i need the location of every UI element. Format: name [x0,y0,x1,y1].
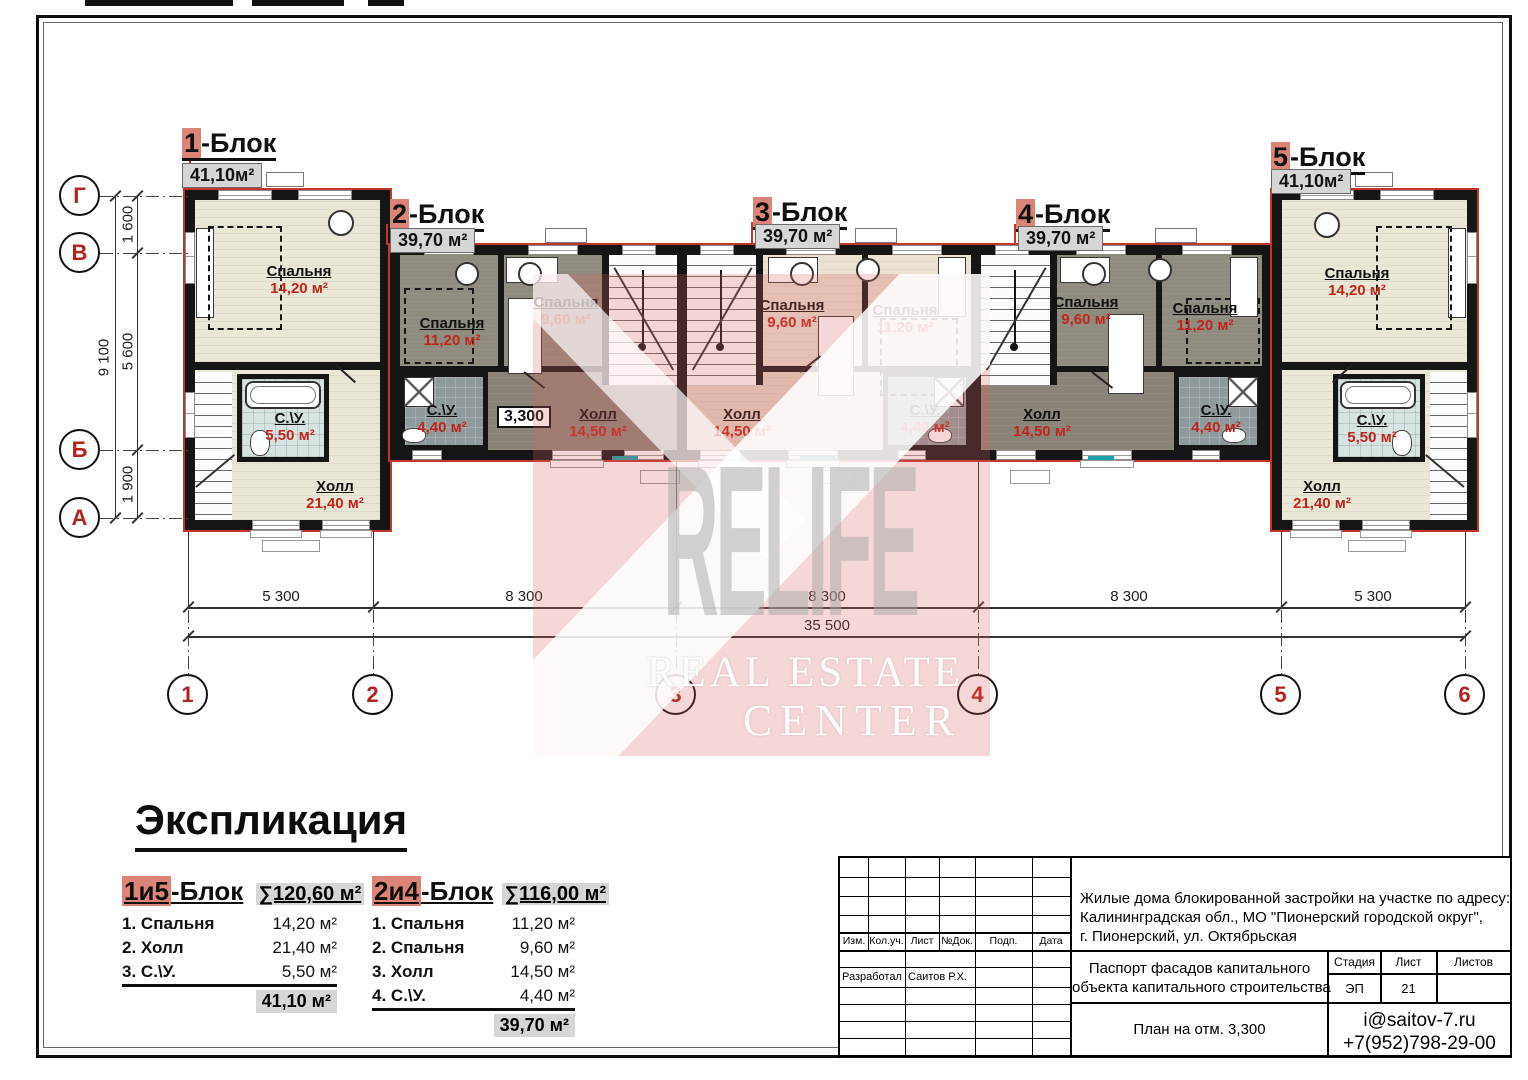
table-row: 2. Холл21,40 м² [122,938,337,958]
table-header: 1и5-Блок ∑120,60 м² [122,876,364,907]
entrance-porch [262,540,320,552]
axis-letter: Б [72,437,88,463]
grid-bubble-3: 3 [655,674,696,715]
dim-value: 5 300 [1343,588,1403,605]
room-name: Спальня [873,302,938,319]
window-opening [412,450,442,460]
room-name: Холл [713,406,771,423]
chair [1082,262,1106,286]
drawing-sheet: { "watermark": {"big": "RELIFE", "line1"… [0,0,1528,1080]
grid-bubble-1: 1 [167,674,208,715]
tb-line [905,858,906,1055]
tb-developer-name: Саитов Р.Х. [908,971,974,983]
tb-sheet-label: Лист [1381,955,1436,969]
tb-line [840,967,1070,968]
room-label-b5-hall: Холл 21,40 м² [1293,478,1351,513]
block-number: 1 [182,128,201,158]
block-number: 5 [1271,142,1290,172]
wall [1282,362,1467,370]
room-name: Спальня [1325,265,1390,282]
grid-line [1465,610,1466,674]
extension-line [373,532,374,608]
label-leader [386,224,388,245]
extension-line [978,462,979,608]
window-opening [1192,450,1220,460]
axis-letter: Г [73,183,85,209]
chair [455,262,479,286]
entrance-porch [1348,540,1406,552]
room-label-b4-hall: Холл 14,50 м² [1013,406,1071,441]
grid-line [1281,610,1282,674]
window-opening [185,232,195,284]
room-label-b3-hall: Холл 14,50 м² [713,406,771,441]
row-area: 14,20 м² [272,914,337,934]
axis-letter: В [72,240,88,266]
window-opening [996,450,1036,460]
tb-line [840,1021,1070,1022]
table-row: 1. Спальня11,20 м² [372,914,575,934]
grid-bubble-5: 5 [1260,674,1301,715]
chair [328,210,354,236]
dim-value: 1 900 [120,450,137,520]
room-label-b1-wc: С.\У. 5,50 м² [265,410,314,445]
block1-area-box: 41,10м² [182,163,262,188]
bathtub [245,381,321,409]
row-area: 4,40 м² [520,986,575,1006]
table-row: 3. С.\У.5,50 м² [122,962,337,982]
window-sill [320,530,372,538]
window-opening [218,190,272,200]
dimension-line [115,196,116,518]
extension-line [1281,532,1282,608]
window-opening [185,392,195,438]
window-sill [1360,530,1412,538]
tb-address-line2: Калининградская обл., МО "Пионерский гор… [1080,909,1483,926]
chair [1148,258,1172,282]
room-name: С.\У. [1191,402,1240,419]
explication-title: Экспликация [135,796,407,852]
table-total: 39,70 м² [494,1014,575,1037]
row-area: 5,50 м² [282,962,337,982]
roof-vent [1155,228,1197,243]
grid-bubble-2: 2 [352,674,393,715]
row-name: С.\У. [391,986,426,1005]
grid-line [188,610,189,674]
window-opening [700,450,740,460]
room-label-b5-wc: С.\У. 5,50 м² [1347,412,1396,447]
room-name: С.\У. [900,402,949,419]
block-number: 2и4 [372,876,421,906]
block-suffix: -Блок [421,876,493,906]
chair [790,262,814,286]
tb-doc-title-line1: Паспорт фасадов капитального [1072,960,1327,977]
window-opening [322,520,370,530]
tb-line [840,896,1070,897]
roof-vent [266,172,304,187]
tb-plan-caption: План на отм. 3,300 [1072,1021,1327,1038]
room-name: Спальня [420,315,485,332]
room-label-b2-bed1: Спальня 11,20 м² [420,315,485,350]
staircase [1430,372,1467,520]
tb-col-izm: Изм. [840,935,868,947]
utility-mark [800,456,836,460]
bathtub [1340,381,1416,409]
grid-number: 4 [971,682,983,708]
table-total-rule [122,984,337,987]
title-block: Изм. Кол.уч. Лист №Док. Подп. Дата Разра… [838,856,1512,1057]
room-name: С.\У. [417,402,466,419]
scan-remnant [368,0,404,6]
room-label-b2-bed2: Спальня 9,60 м² [534,294,599,329]
room-label-b4-wc: С.\У. 4,40 м² [1191,402,1240,437]
row-name: Холл [391,962,434,981]
room-area: 21,40 м² [306,495,364,512]
block2-title: 2-Блок [390,201,484,232]
row-name: Спальня [391,914,464,933]
table-sum: ∑116,00 м² [502,883,609,905]
grid-number: 1 [181,682,193,708]
room-name: Спальня [534,294,599,311]
row-area: 11,20 м² [512,914,575,934]
dim-value: 5 600 [120,317,137,387]
tb-contact-phone: +7(952)798-29-00 [1329,1033,1510,1055]
row-num: 4. [372,986,386,1005]
window-sill [250,530,302,538]
elevation-mark: 3,300 [497,406,551,428]
table-header: 2и4-Блок ∑116,00 м² [372,876,609,907]
tb-sheet-value: 21 [1381,981,1436,996]
window-sill [1080,460,1134,468]
window-opening [622,245,656,255]
dim-value: 8 300 [1099,588,1159,605]
row-num: 2. [372,938,386,957]
tb-developer-label: Разработал [842,971,904,983]
tb-line [975,858,976,1055]
block-suffix: -Блок [772,197,847,227]
extension-line [676,462,677,608]
tb-line [840,1038,1070,1039]
block3-area-box: 39,70 м² [755,224,840,249]
room-label-b3-wc: С.\У. 4,40 м² [900,402,949,437]
room-area: 14,20 м² [1325,282,1390,299]
staircase [195,372,232,520]
block-number: 2 [390,199,409,229]
row-num: 1. [122,914,136,933]
room-name: Холл [306,478,364,495]
tb-col-podp: Подп. [975,935,1032,947]
grid-number: 3 [669,682,681,708]
dimension-line [188,607,1466,609]
stair-post-dot [1010,343,1018,351]
row-name: С.\У. [141,962,176,981]
window-opening [1182,245,1232,255]
window-opening [1467,392,1477,438]
tb-doc-title-line2: объекта капитального строительства [1072,979,1327,996]
room-label-b3-bed1: Спальня 9,60 м² [760,297,825,332]
room-area: 14,50 м² [713,423,771,440]
stair-post [720,270,722,346]
explication-table-1: 1и5-Блок ∑120,60 м² 1. Спальня14,20 м² 2… [122,876,337,1026]
block2-area-box: 39,70 м² [390,228,475,253]
row-name: Спальня [391,938,464,957]
tb-col-list: Лист [905,935,939,947]
block-number: 4 [1016,199,1035,229]
tb-col-data: Дата [1032,935,1070,947]
room-area: 14,50 м² [569,423,627,440]
table-row: 3. Холл14,50 м² [372,962,575,982]
extension-line [188,532,189,608]
row-area: 21,40 м² [272,938,337,958]
dim-value: 8 300 [494,588,554,605]
window-opening [252,520,300,530]
row-name: Холл [141,938,184,957]
room-label-b1-hall: Холл 21,40 м² [306,478,364,513]
axis-line [100,450,188,451]
window-sill [698,460,742,468]
scan-remnant [85,0,233,6]
entrance-porch [820,470,854,484]
block-number: 3 [753,197,772,227]
room-area: 9,60 м² [760,314,825,331]
room-name: Холл [569,406,627,423]
grid-number: 2 [366,682,378,708]
axis-line [100,253,188,254]
tb-line [840,987,1070,988]
row-num: 3. [122,962,136,981]
row-num: 3. [372,962,386,981]
tb-line [840,1004,1070,1005]
wardrobe [938,257,966,317]
block5-area-box: 41,10м² [1271,169,1351,194]
room-area: 21,40 м² [1293,495,1351,512]
row-num: 1. [372,914,386,933]
party-wall [971,255,981,450]
room-area: 9,60 м² [534,311,599,328]
room-name: С.\У. [265,410,314,427]
axis-letter: А [72,505,88,531]
table-row: 4. С.\У.4,40 м² [372,986,575,1006]
window-sill [1290,530,1342,538]
table-block-name: 1и5-Блок [122,876,243,906]
roof-vent [855,228,897,243]
dim-value: 5 300 [251,588,311,605]
grid-line [978,610,979,674]
window-opening [1362,520,1410,530]
stair-post-dot [638,343,646,351]
grid-bubble-4: 4 [957,674,998,715]
tb-address-line1: Жилые дома блокированной застройки на уч… [1080,890,1510,907]
room-name: Холл [1293,478,1351,495]
stair-post [642,270,644,346]
window-sill [786,460,840,468]
room-area: 11,20 м² [1173,317,1238,334]
chair [1314,212,1340,238]
room-area: 9,60 м² [1054,311,1119,328]
chair [856,258,880,282]
roof-vent [545,228,587,243]
scan-remnant [252,0,344,6]
room-area: 14,50 м² [1013,423,1071,440]
table-block-name: 2и4-Блок [372,876,493,906]
room-name: Спальня [1054,294,1119,311]
room-area: 5,50 м² [265,427,314,444]
tb-col-ndok: №Док. [939,935,975,947]
table-sum: ∑120,60 м² [256,883,364,905]
room-name: Спальня [267,263,332,280]
tb-sheets-label: Листов [1437,955,1510,969]
block-suffix: -Блок [1290,142,1365,172]
stair-post [1014,270,1016,346]
table-total: 41,10 м² [256,990,337,1013]
entrance-porch [1010,470,1050,484]
window-opening [1292,520,1340,530]
tb-line [1329,973,1510,975]
room-label-b1-bedroom: Спальня 14,20 м² [267,263,332,298]
table-row: 2. Спальня9,60 м² [372,938,575,958]
room-name: Спальня [760,297,825,314]
utility-mark [612,456,638,460]
axis-bubble-g: Г [59,175,100,216]
row-area: 14,50 м² [510,962,575,982]
room-label-b4-bed2: Спальня 11,20 м² [1173,300,1238,335]
party-wall [677,255,687,450]
table-total-rule [372,1008,575,1011]
window-sill [550,460,604,468]
room-label-b5-bedroom: Спальня 14,20 м² [1325,265,1390,300]
grid-line [676,610,677,674]
grid-bubble-6: 6 [1444,674,1485,715]
tb-line [1070,1002,1510,1004]
window-opening [298,190,352,200]
tb-line [840,932,1072,934]
block-suffix: -Блок [409,199,484,229]
room-area: 4,40 м² [1191,419,1240,436]
axis-bubble-v: В [59,232,100,273]
window-opening [898,450,926,460]
row-name: Спальня [141,914,214,933]
tb-line [1032,858,1033,1055]
block-suffix: -Блок [1035,199,1110,229]
window-opening [1380,190,1434,200]
dimension-line [137,196,138,518]
row-area: 9,60 м² [520,938,575,958]
room-name: С.\У. [1347,412,1396,429]
room-area: 14,20 м² [267,280,332,297]
tb-address-line3: г. Пионерский, ул. Октябрьская [1080,928,1297,945]
room-name: Спальня [1173,300,1238,317]
window-opening [892,245,942,255]
dim-value: 8 300 [797,588,857,605]
grid-number: 5 [1274,682,1286,708]
table-row: 1. Спальня14,20 м² [122,914,337,934]
block-number: 1и5 [122,876,171,906]
row-num: 2. [122,938,136,957]
entrance-porch [640,470,680,484]
dimension-line [188,636,1466,638]
room-label-b2-wc: С.\У. 4,40 м² [417,402,466,437]
tb-line [840,877,1070,878]
grid-number: 6 [1458,682,1470,708]
tb-contact-email: i@saitov-7.ru [1329,1010,1510,1032]
stair-post-dot [716,343,724,351]
block4-area-box: 39,70 м² [1018,226,1103,251]
grid-line [373,610,374,674]
explication-table-2: 2и4-Блок ∑116,00 м² 1. Спальня11,20 м² 2… [372,876,575,1051]
dim-total: 9 100 [96,323,113,393]
tb-stage-label: Стадия [1329,955,1380,969]
room-label-b3-bed2: Спальня 11,20 м² [873,302,938,337]
room-label-b2-hall: Холл 14,50 м² [569,406,627,441]
room-name: Холл [1013,406,1071,423]
wall [602,255,609,385]
window-opening [700,245,734,255]
tb-col-koluch: Кол.уч. [868,935,905,947]
tb-line [840,950,1510,952]
room-area: 11,20 м² [873,319,938,336]
dim-total: 35 500 [792,617,862,634]
room-area: 5,50 м² [1347,429,1396,446]
extension-line [1465,532,1466,608]
window-opening [552,450,602,460]
window-opening [1467,232,1477,284]
block1-title: 1-Блок [182,130,276,161]
room-area: 11,20 м² [420,332,485,349]
utility-mark [1088,456,1114,460]
room-area: 4,40 м² [417,419,466,436]
wall [195,362,380,370]
tb-stage-value: ЭП [1329,981,1380,996]
chair [518,262,542,286]
block-suffix: -Блок [171,876,243,906]
room-label-b4-bed1: Спальня 9,60 м² [1054,294,1119,329]
axis-bubble-b: Б [59,429,100,470]
tb-line [840,915,1070,916]
window-opening [528,245,578,255]
axis-bubble-a: А [59,497,100,538]
block-suffix: -Блок [201,128,276,158]
room-area: 4,40 м² [900,419,949,436]
